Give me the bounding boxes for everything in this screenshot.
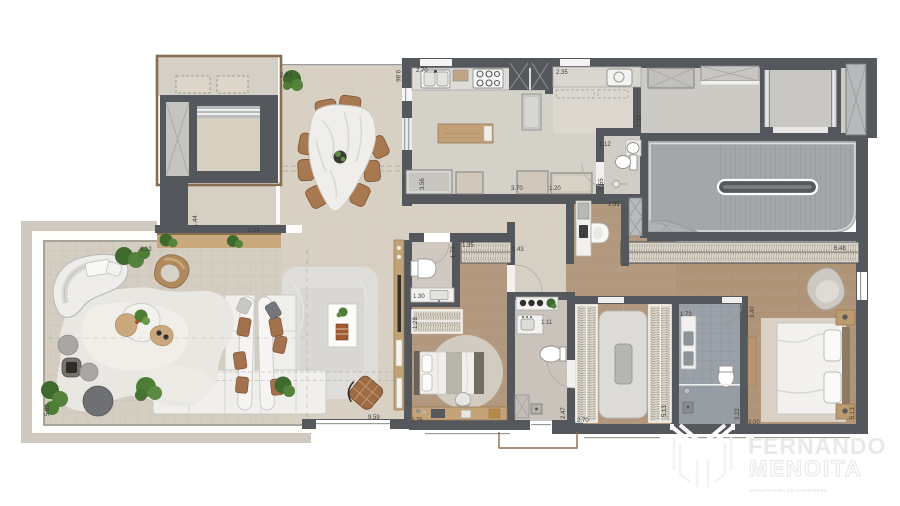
- svg-text:2.70: 2.70: [577, 418, 589, 424]
- svg-text:1.11: 1.11: [541, 320, 553, 326]
- svg-text:1.55: 1.55: [599, 178, 605, 190]
- svg-text:3.12: 3.12: [140, 247, 152, 253]
- svg-text:1.20: 1.20: [549, 186, 561, 192]
- svg-text:1.73: 1.73: [680, 312, 692, 318]
- svg-text:3.00: 3.00: [748, 420, 760, 426]
- svg-text:6.48: 6.48: [834, 246, 846, 252]
- svg-text:2.47: 2.47: [561, 407, 567, 419]
- svg-text:MENOITA: MENOITA: [749, 456, 863, 481]
- svg-text:5.13: 5.13: [662, 405, 668, 417]
- svg-text:3.22: 3.22: [735, 408, 741, 420]
- svg-text:2.35: 2.35: [556, 70, 568, 76]
- svg-text:1.43: 1.43: [512, 247, 524, 253]
- svg-text:1.83: 1.83: [637, 115, 643, 127]
- svg-text:1.35: 1.35: [462, 243, 474, 249]
- svg-text:5.03: 5.03: [45, 404, 51, 416]
- svg-text:2.70: 2.70: [416, 68, 428, 74]
- svg-text:1.44: 1.44: [193, 215, 199, 227]
- svg-text:1.73: 1.73: [451, 246, 457, 258]
- svg-text:3.56: 3.56: [420, 178, 426, 190]
- svg-text:1.12: 1.12: [599, 142, 611, 148]
- svg-text:5.13: 5.13: [850, 407, 856, 419]
- svg-text:1.30: 1.30: [413, 294, 425, 300]
- svg-text:9.59: 9.59: [368, 415, 380, 421]
- svg-text:ARQUITETURA DE INTERIORES: ARQUITETURA DE INTERIORES: [749, 488, 827, 493]
- svg-text:1.28: 1.28: [413, 317, 419, 329]
- svg-text:9.86: 9.86: [394, 70, 400, 82]
- svg-text:1.31: 1.31: [608, 202, 620, 208]
- svg-text:3.70: 3.70: [511, 186, 523, 192]
- svg-text:2.04: 2.04: [248, 228, 260, 234]
- svg-text:2.75: 2.75: [411, 418, 423, 424]
- svg-text:2.82: 2.82: [280, 73, 292, 79]
- svg-text:3.40: 3.40: [750, 306, 756, 318]
